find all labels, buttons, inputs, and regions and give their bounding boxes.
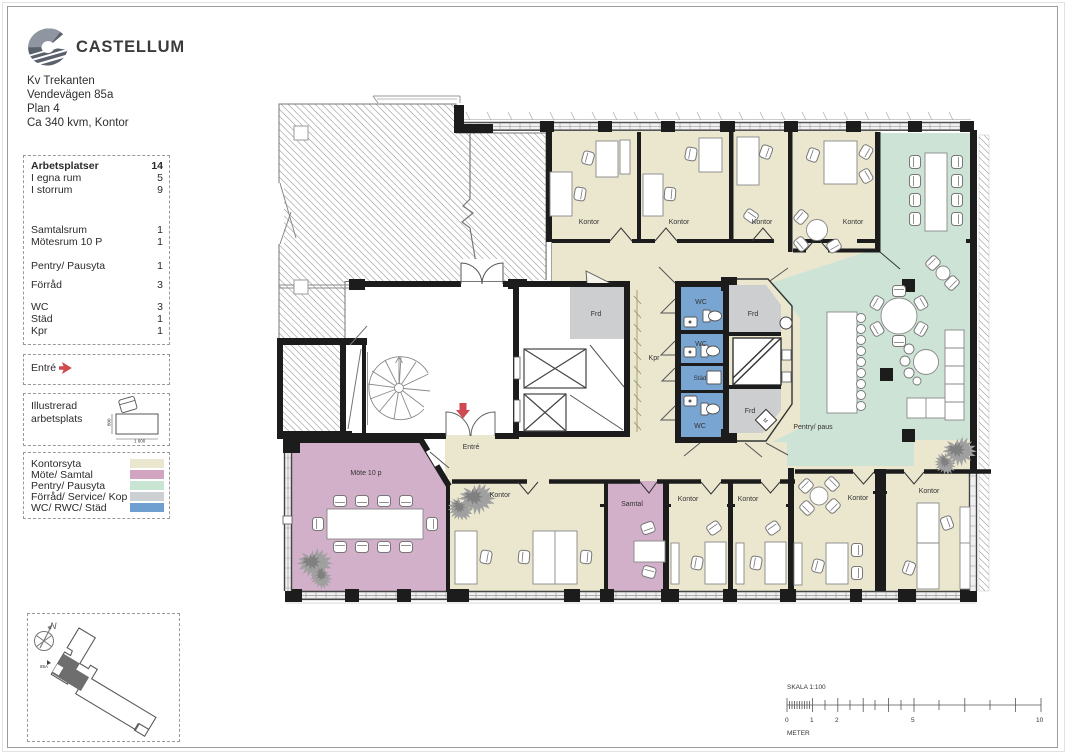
- svg-text:Kontor: Kontor: [579, 219, 600, 226]
- svg-text:Kpr: Kpr: [649, 355, 661, 362]
- svg-text:METER: METER: [787, 730, 810, 737]
- svg-text:Kontor: Kontor: [669, 219, 690, 226]
- svg-text:Kontor: Kontor: [848, 495, 869, 502]
- svg-text:5: 5: [911, 717, 915, 724]
- svg-text:Samtal: Samtal: [621, 501, 643, 508]
- svg-text:Kontor: Kontor: [752, 219, 773, 226]
- svg-text:0: 0: [785, 717, 789, 724]
- svg-text:10: 10: [1036, 717, 1044, 724]
- svg-text:Möte 10 p: Möte 10 p: [350, 470, 381, 477]
- svg-text:WC: WC: [694, 423, 706, 430]
- svg-text:Frd: Frd: [748, 311, 759, 318]
- svg-text:Kontor: Kontor: [678, 496, 699, 503]
- svg-text:Frd: Frd: [591, 311, 602, 318]
- svg-text:1: 1: [810, 717, 814, 724]
- svg-text:Kontor: Kontor: [919, 488, 940, 495]
- svg-text:2: 2: [835, 717, 839, 724]
- svg-text:Kontor: Kontor: [490, 492, 511, 499]
- svg-text:Kontor: Kontor: [843, 219, 864, 226]
- svg-text:85A: 85A: [40, 664, 48, 669]
- svg-text:WC: WC: [695, 341, 707, 348]
- svg-text:Kontor: Kontor: [738, 496, 759, 503]
- svg-text:Frd: Frd: [745, 408, 756, 415]
- svg-text:N: N: [50, 621, 57, 631]
- svg-text:WC: WC: [695, 299, 707, 306]
- svg-text:SKALA 1:100: SKALA 1:100: [787, 684, 826, 691]
- svg-text:Städ: Städ: [694, 375, 707, 382]
- svg-text:Pentry/ paus: Pentry/ paus: [793, 424, 833, 431]
- svg-text:Entré: Entré: [463, 444, 480, 451]
